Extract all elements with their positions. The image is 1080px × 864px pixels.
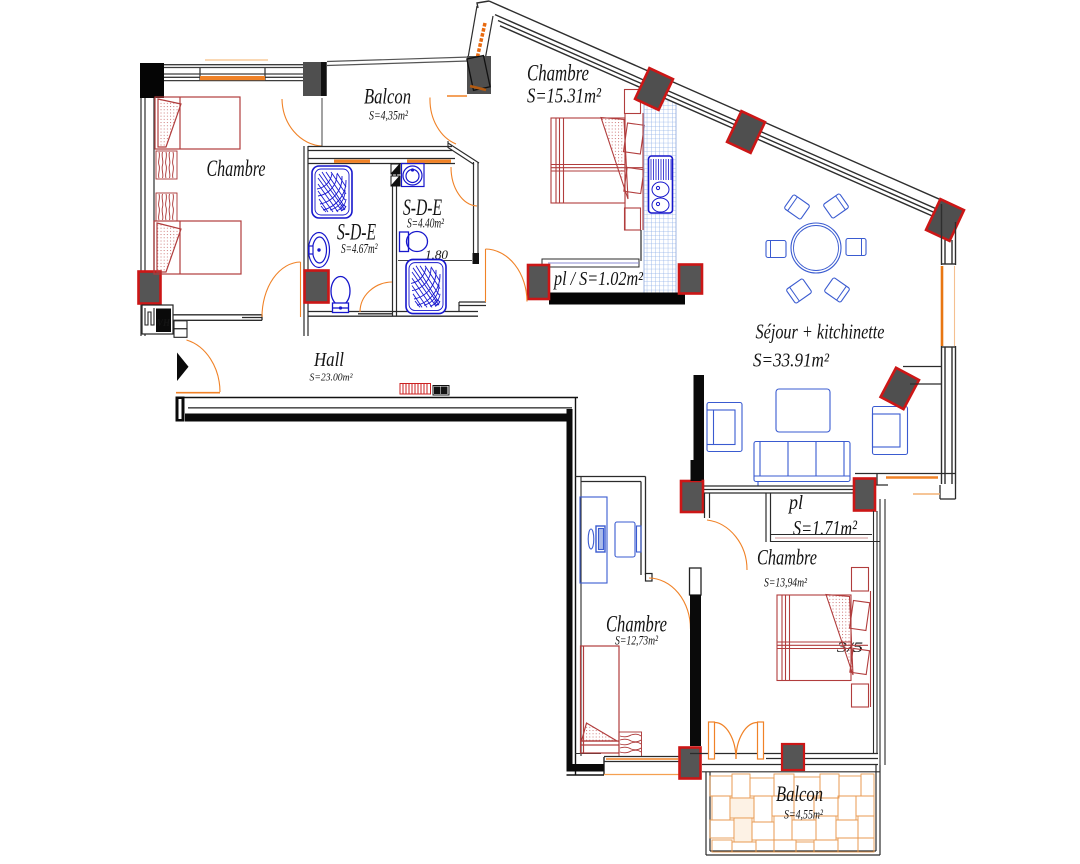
svg-text:S=12,73m²: S=12,73m² [615,633,659,648]
svg-text:Chambre: Chambre [207,156,266,181]
svg-text:S=4.40m²: S=4.40m² [407,216,445,231]
svg-text:S=4,55m²: S=4,55m² [784,807,824,822]
svg-text:Balcon: Balcon [776,781,823,806]
svg-text:Séjour + kitchinette: Séjour + kitchinette [756,320,885,344]
svg-text:S=13,94m²: S=13,94m² [764,576,807,590]
svg-text:S=33.91m²: S=33.91m² [753,350,830,372]
svg-text:Balcon: Balcon [364,84,411,109]
svg-text:S=1.71m²: S=1.71m² [793,516,858,540]
svg-text:pl: pl [787,492,803,514]
svg-text:S-D-E: S-D-E [337,220,376,245]
svg-text:Chambre: Chambre [757,545,817,570]
svg-text:S=4,35m²: S=4,35m² [369,108,409,123]
svg-text:pl / S=1.02m²: pl / S=1.02m² [552,268,643,290]
svg-text:S=15.31m²: S=15.31m² [527,84,602,108]
svg-text:Hall: Hall [313,349,344,371]
svg-text:S=23.00m²: S=23.00m² [310,372,354,384]
svg-text:VH: VH [157,318,171,329]
svg-text:S=4.67m²: S=4.67m² [341,242,378,257]
svg-text:Chambre: Chambre [527,61,589,86]
